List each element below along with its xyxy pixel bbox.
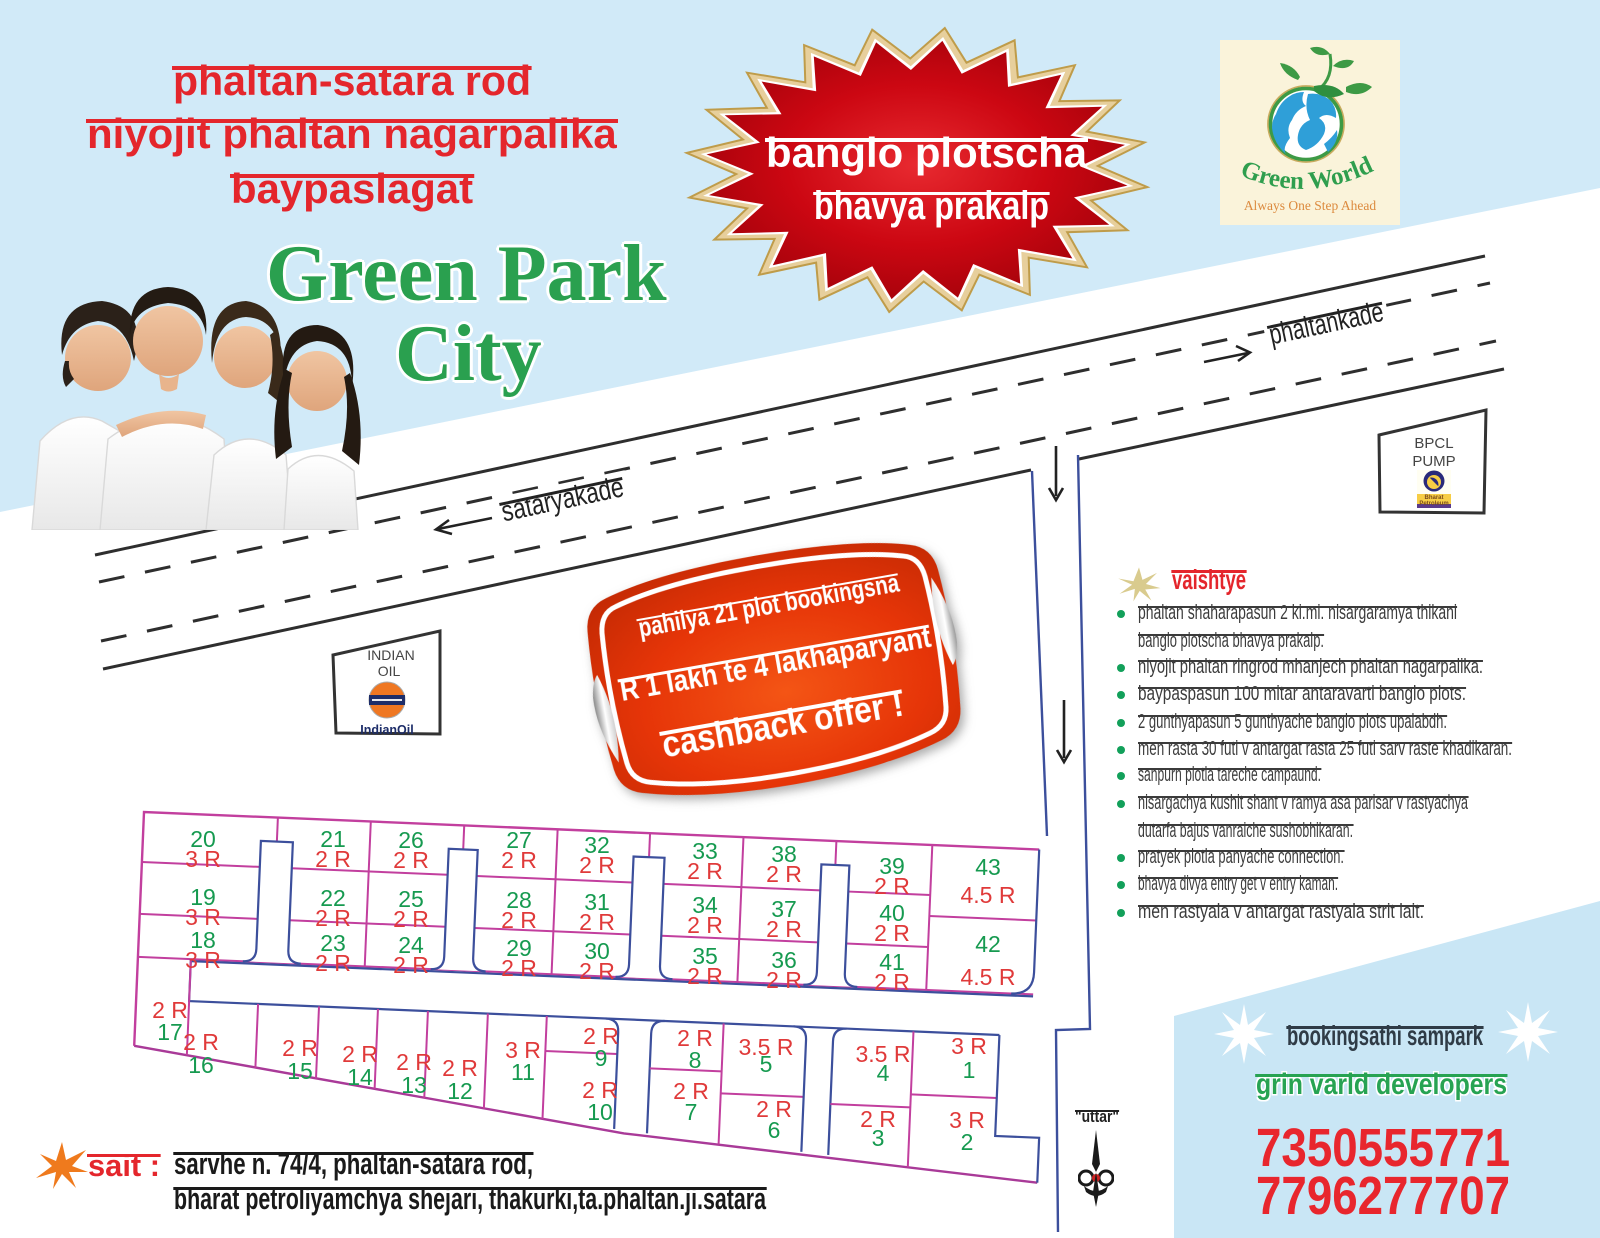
svg-text:3: 3 bbox=[872, 1125, 885, 1151]
svg-text:6: 6 bbox=[768, 1117, 781, 1143]
svg-text:2: 2 bbox=[961, 1129, 974, 1155]
svg-text:16: 16 bbox=[188, 1052, 214, 1078]
svg-text:3 R: 3 R bbox=[951, 1033, 987, 1059]
svg-text:2 R: 2 R bbox=[874, 873, 910, 899]
svg-text:2 R: 2 R bbox=[315, 950, 351, 976]
svg-text:BPCL: BPCL bbox=[1414, 435, 1453, 452]
svg-text:2 R: 2 R bbox=[393, 906, 429, 932]
svg-text:IndianOil: IndianOil bbox=[360, 723, 413, 737]
svg-text:7: 7 bbox=[685, 1099, 698, 1125]
svg-text:42: 42 bbox=[975, 931, 1001, 957]
svg-text:4.5 R: 4.5 R bbox=[961, 964, 1016, 990]
svg-text:5: 5 bbox=[760, 1051, 773, 1077]
svg-text:2 R: 2 R bbox=[766, 916, 802, 942]
svg-text:8: 8 bbox=[689, 1047, 702, 1073]
svg-text:15: 15 bbox=[287, 1058, 313, 1084]
svg-text:2 R: 2 R bbox=[393, 952, 429, 978]
svg-text:12: 12 bbox=[447, 1078, 473, 1104]
svg-text:2 R: 2 R bbox=[687, 912, 723, 938]
svg-text:2 R: 2 R bbox=[687, 963, 723, 989]
svg-text:13: 13 bbox=[401, 1072, 427, 1098]
svg-text:2 R: 2 R bbox=[874, 920, 910, 946]
svg-text:2 R: 2 R bbox=[315, 905, 351, 931]
svg-text:4.5 R: 4.5 R bbox=[961, 882, 1016, 908]
svg-text:1: 1 bbox=[963, 1057, 976, 1083]
svg-text:3 R: 3 R bbox=[185, 947, 221, 973]
svg-text:2 R: 2 R bbox=[393, 847, 429, 873]
svg-text:2 R: 2 R bbox=[766, 861, 802, 887]
svg-text:2 R: 2 R bbox=[501, 847, 537, 873]
svg-text:4: 4 bbox=[877, 1060, 890, 1086]
svg-text:17: 17 bbox=[157, 1019, 183, 1045]
svg-text:43: 43 bbox=[975, 854, 1001, 880]
svg-text:PUMP: PUMP bbox=[1412, 453, 1455, 470]
svg-text:2 R: 2 R bbox=[315, 846, 351, 872]
svg-text:Petroleum: Petroleum bbox=[1419, 501, 1448, 507]
svg-text:2 R: 2 R bbox=[579, 852, 615, 878]
svg-text:2 R: 2 R bbox=[579, 909, 615, 935]
svg-text:14: 14 bbox=[347, 1064, 373, 1090]
svg-text:2 R: 2 R bbox=[501, 955, 537, 981]
svg-text:OIL: OIL bbox=[378, 663, 401, 679]
svg-text:2 R: 2 R bbox=[874, 969, 910, 995]
svg-text:11: 11 bbox=[511, 1059, 535, 1085]
svg-text:9: 9 bbox=[595, 1045, 608, 1071]
svg-text:INDIAN: INDIAN bbox=[367, 647, 414, 663]
svg-text:2 R: 2 R bbox=[579, 958, 615, 984]
svg-text:2 R: 2 R bbox=[687, 858, 723, 884]
svg-text:2 R: 2 R bbox=[766, 967, 802, 993]
svg-text:10: 10 bbox=[587, 1099, 613, 1125]
svg-text:2 R: 2 R bbox=[501, 907, 537, 933]
svg-text:3 R: 3 R bbox=[185, 846, 221, 872]
